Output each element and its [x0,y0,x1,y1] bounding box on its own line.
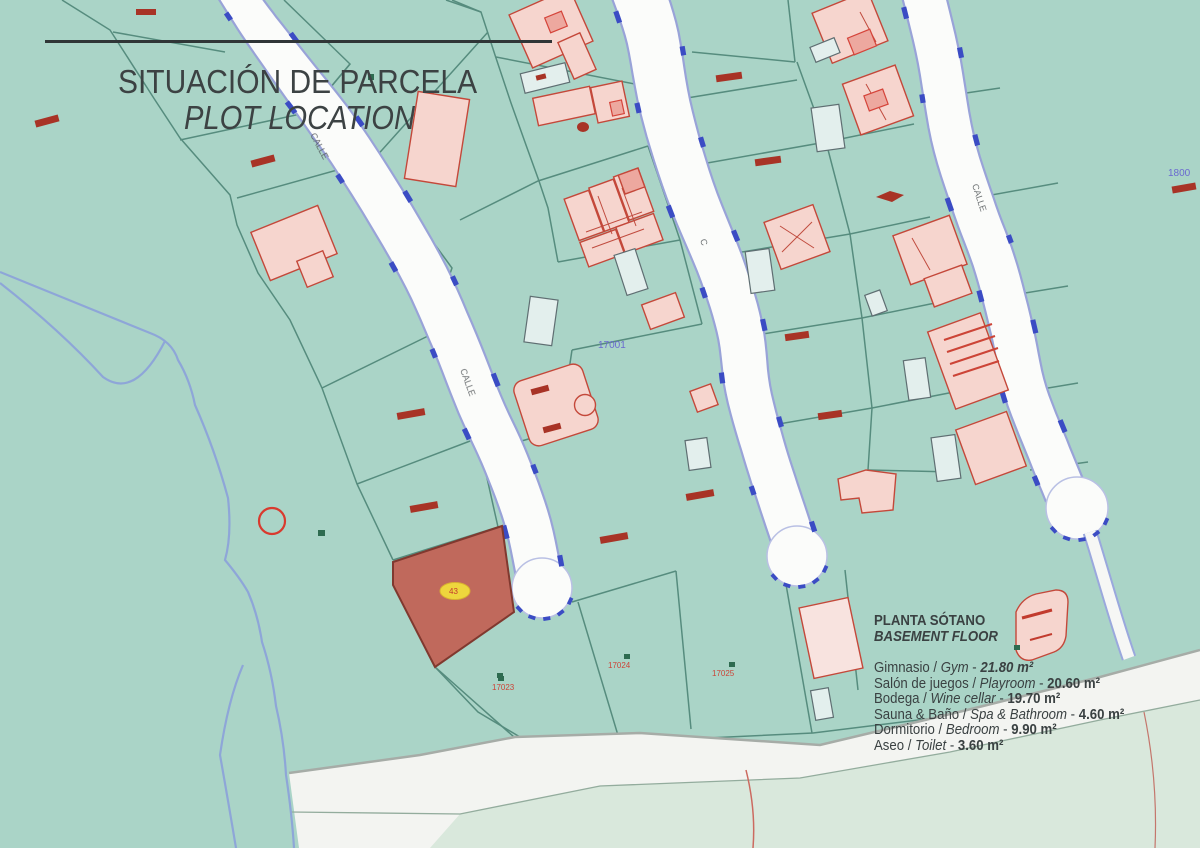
svg-text:17024: 17024 [608,661,631,670]
svg-text:43: 43 [449,587,458,596]
svg-text:1800: 1800 [1168,168,1191,179]
svg-text:17001: 17001 [598,340,626,351]
svg-text:17023: 17023 [492,683,515,692]
svg-text:17025: 17025 [712,669,735,678]
